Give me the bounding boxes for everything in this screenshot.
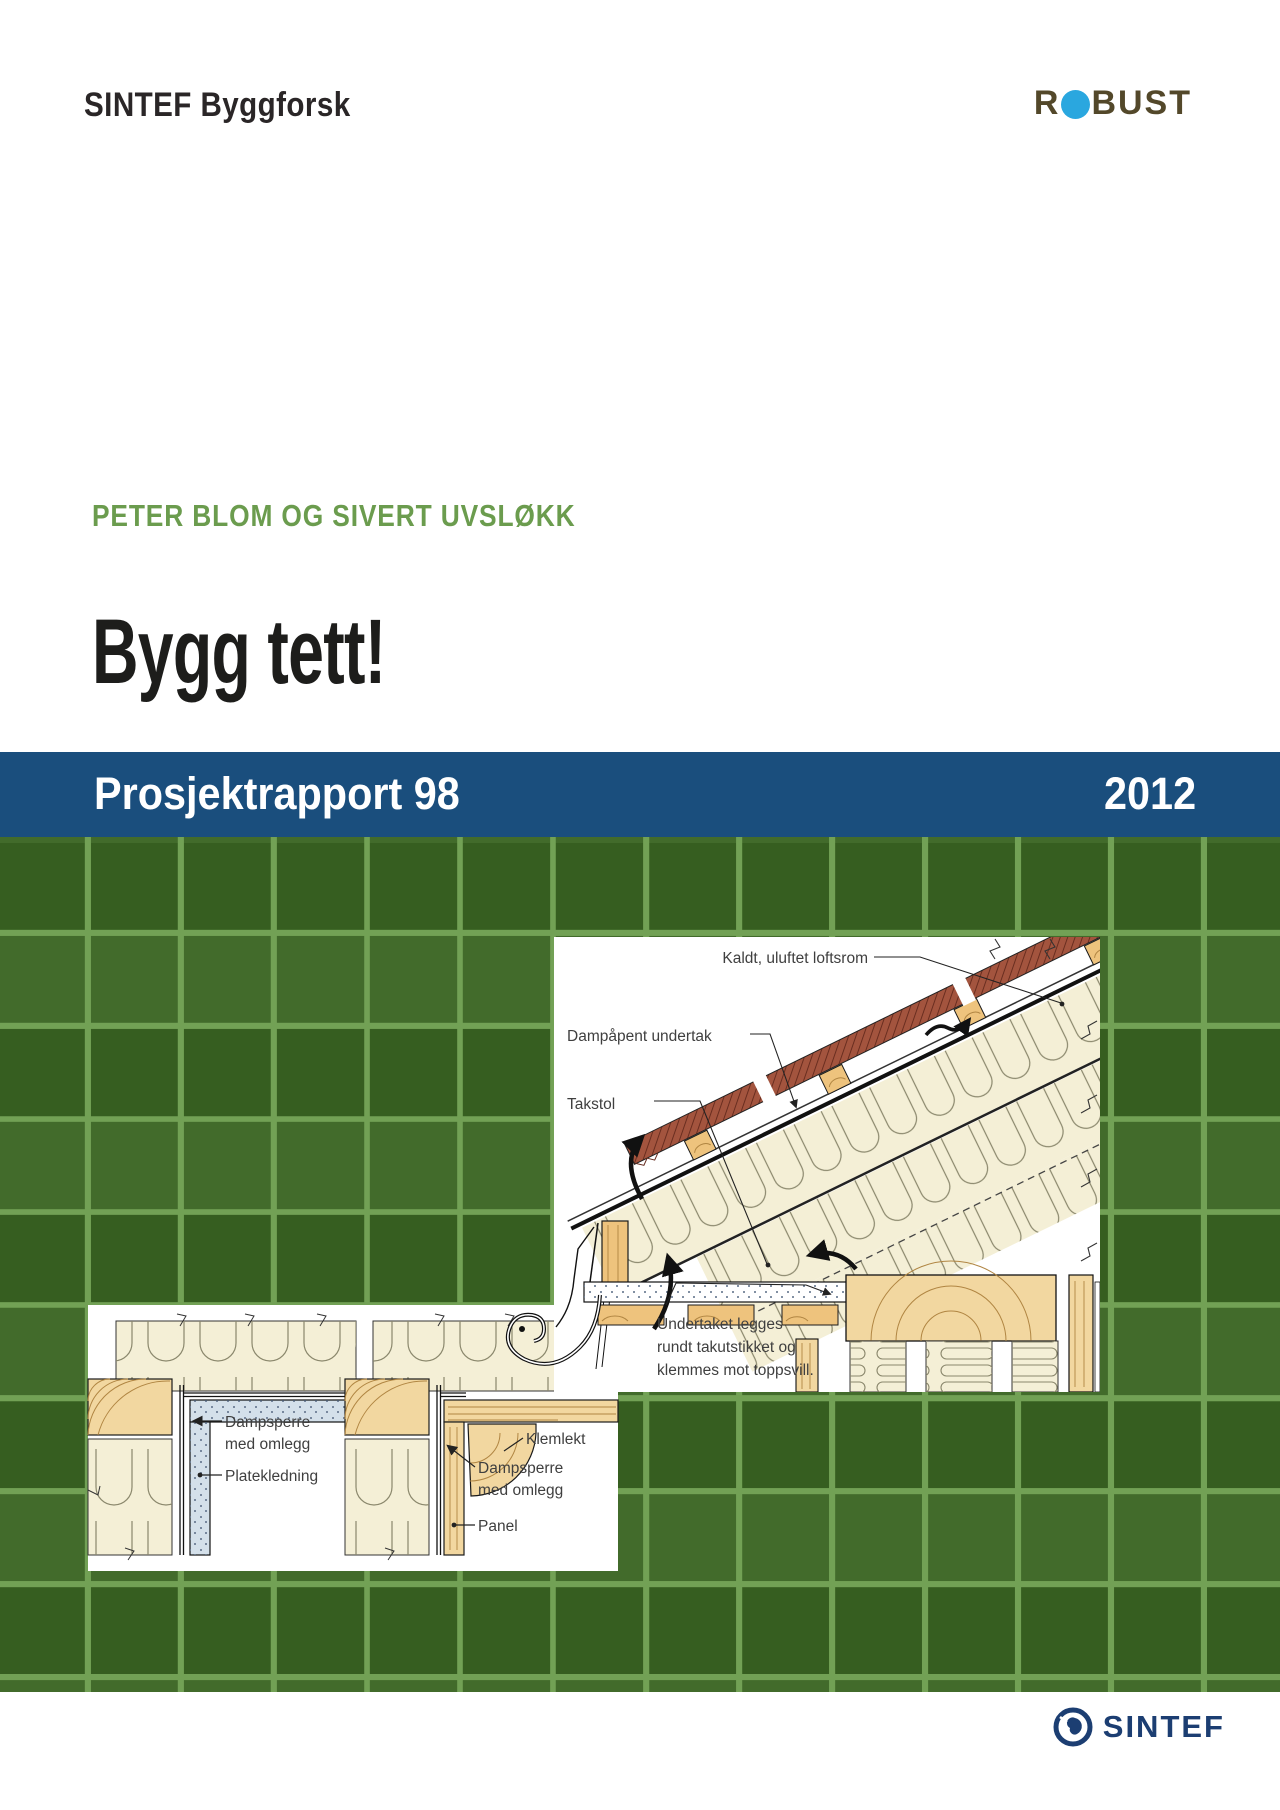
report-banner: Prosjektrapport 98 2012 <box>0 752 1280 837</box>
label-panel: Panel <box>478 1518 518 1535</box>
authors-line: PETER BLOM OG SIVERT UVSLØKK <box>92 498 576 534</box>
label-dampsperre-right-1: Dampsperre <box>478 1460 563 1477</box>
robust-o-dot-icon <box>1061 90 1090 119</box>
label-klemlekt: Klemlekt <box>526 1431 586 1448</box>
label-dampsperre-left-2: med omlegg <box>225 1436 310 1453</box>
wall-details-figure: Dampsperre med omlegg Platekledning <box>88 1305 618 1571</box>
publisher-brand: SINTEF Byggforsk <box>84 86 351 125</box>
sintef-logo: SINTEF <box>1052 1706 1225 1748</box>
label-note-1: Undertaket legges <box>657 1316 783 1333</box>
wall-detail-left: Dampsperre med omlegg Platekledning <box>88 1314 356 1560</box>
robust-logo-r: R <box>1034 84 1061 123</box>
sintef-logo-text: SINTEF <box>1103 1709 1225 1745</box>
label-attic: Kaldt, uluftet loftsrom <box>722 950 868 967</box>
sintef-emblem-icon <box>1052 1706 1094 1748</box>
label-dampsperre-right-2: med omlegg <box>478 1482 563 1499</box>
robust-logo-rest: BUST <box>1091 84 1192 123</box>
label-dampsperre-left-1: Dampsperre <box>225 1414 310 1431</box>
page-title: Bygg tett! <box>92 600 385 705</box>
label-truss: Takstol <box>567 1096 615 1113</box>
robust-logo: RBUST <box>1034 84 1192 123</box>
label-platekledning: Platekledning <box>225 1468 318 1485</box>
label-note-3: klemmes mot toppsvill. <box>657 1362 814 1379</box>
report-cover: SINTEF Byggforsk RBUST PETER BLOM OG SIV… <box>0 0 1280 1810</box>
label-membrane: Dampåpent undertak <box>567 1028 712 1045</box>
roof-detail-drawing: Kaldt, uluftet loftsrom Dampåpent undert… <box>554 937 1100 1392</box>
report-series-label: Prosjektrapport 98 <box>94 752 460 837</box>
wall-details-drawing: Dampsperre med omlegg Platekledning <box>88 1305 618 1571</box>
report-year: 2012 <box>1104 752 1196 837</box>
footer-strip: SINTEF <box>0 1692 1280 1810</box>
label-note-2: rundt takutstikket og <box>657 1339 796 1356</box>
roof-detail-figure: Kaldt, uluftet loftsrom Dampåpent undert… <box>554 937 1100 1392</box>
